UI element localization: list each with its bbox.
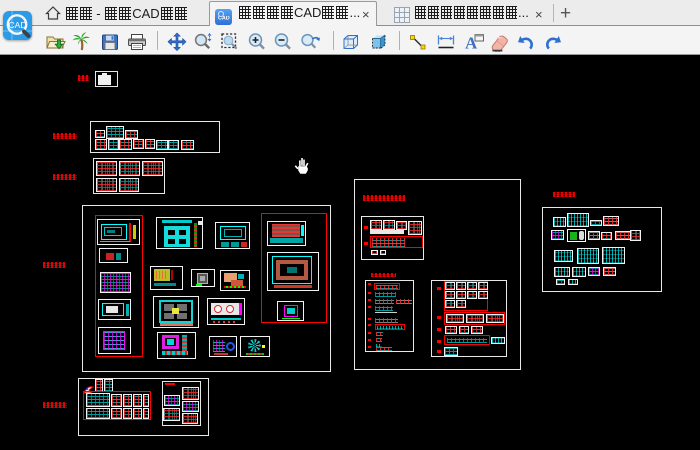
svg-text:CAD: CAD: [9, 20, 27, 30]
